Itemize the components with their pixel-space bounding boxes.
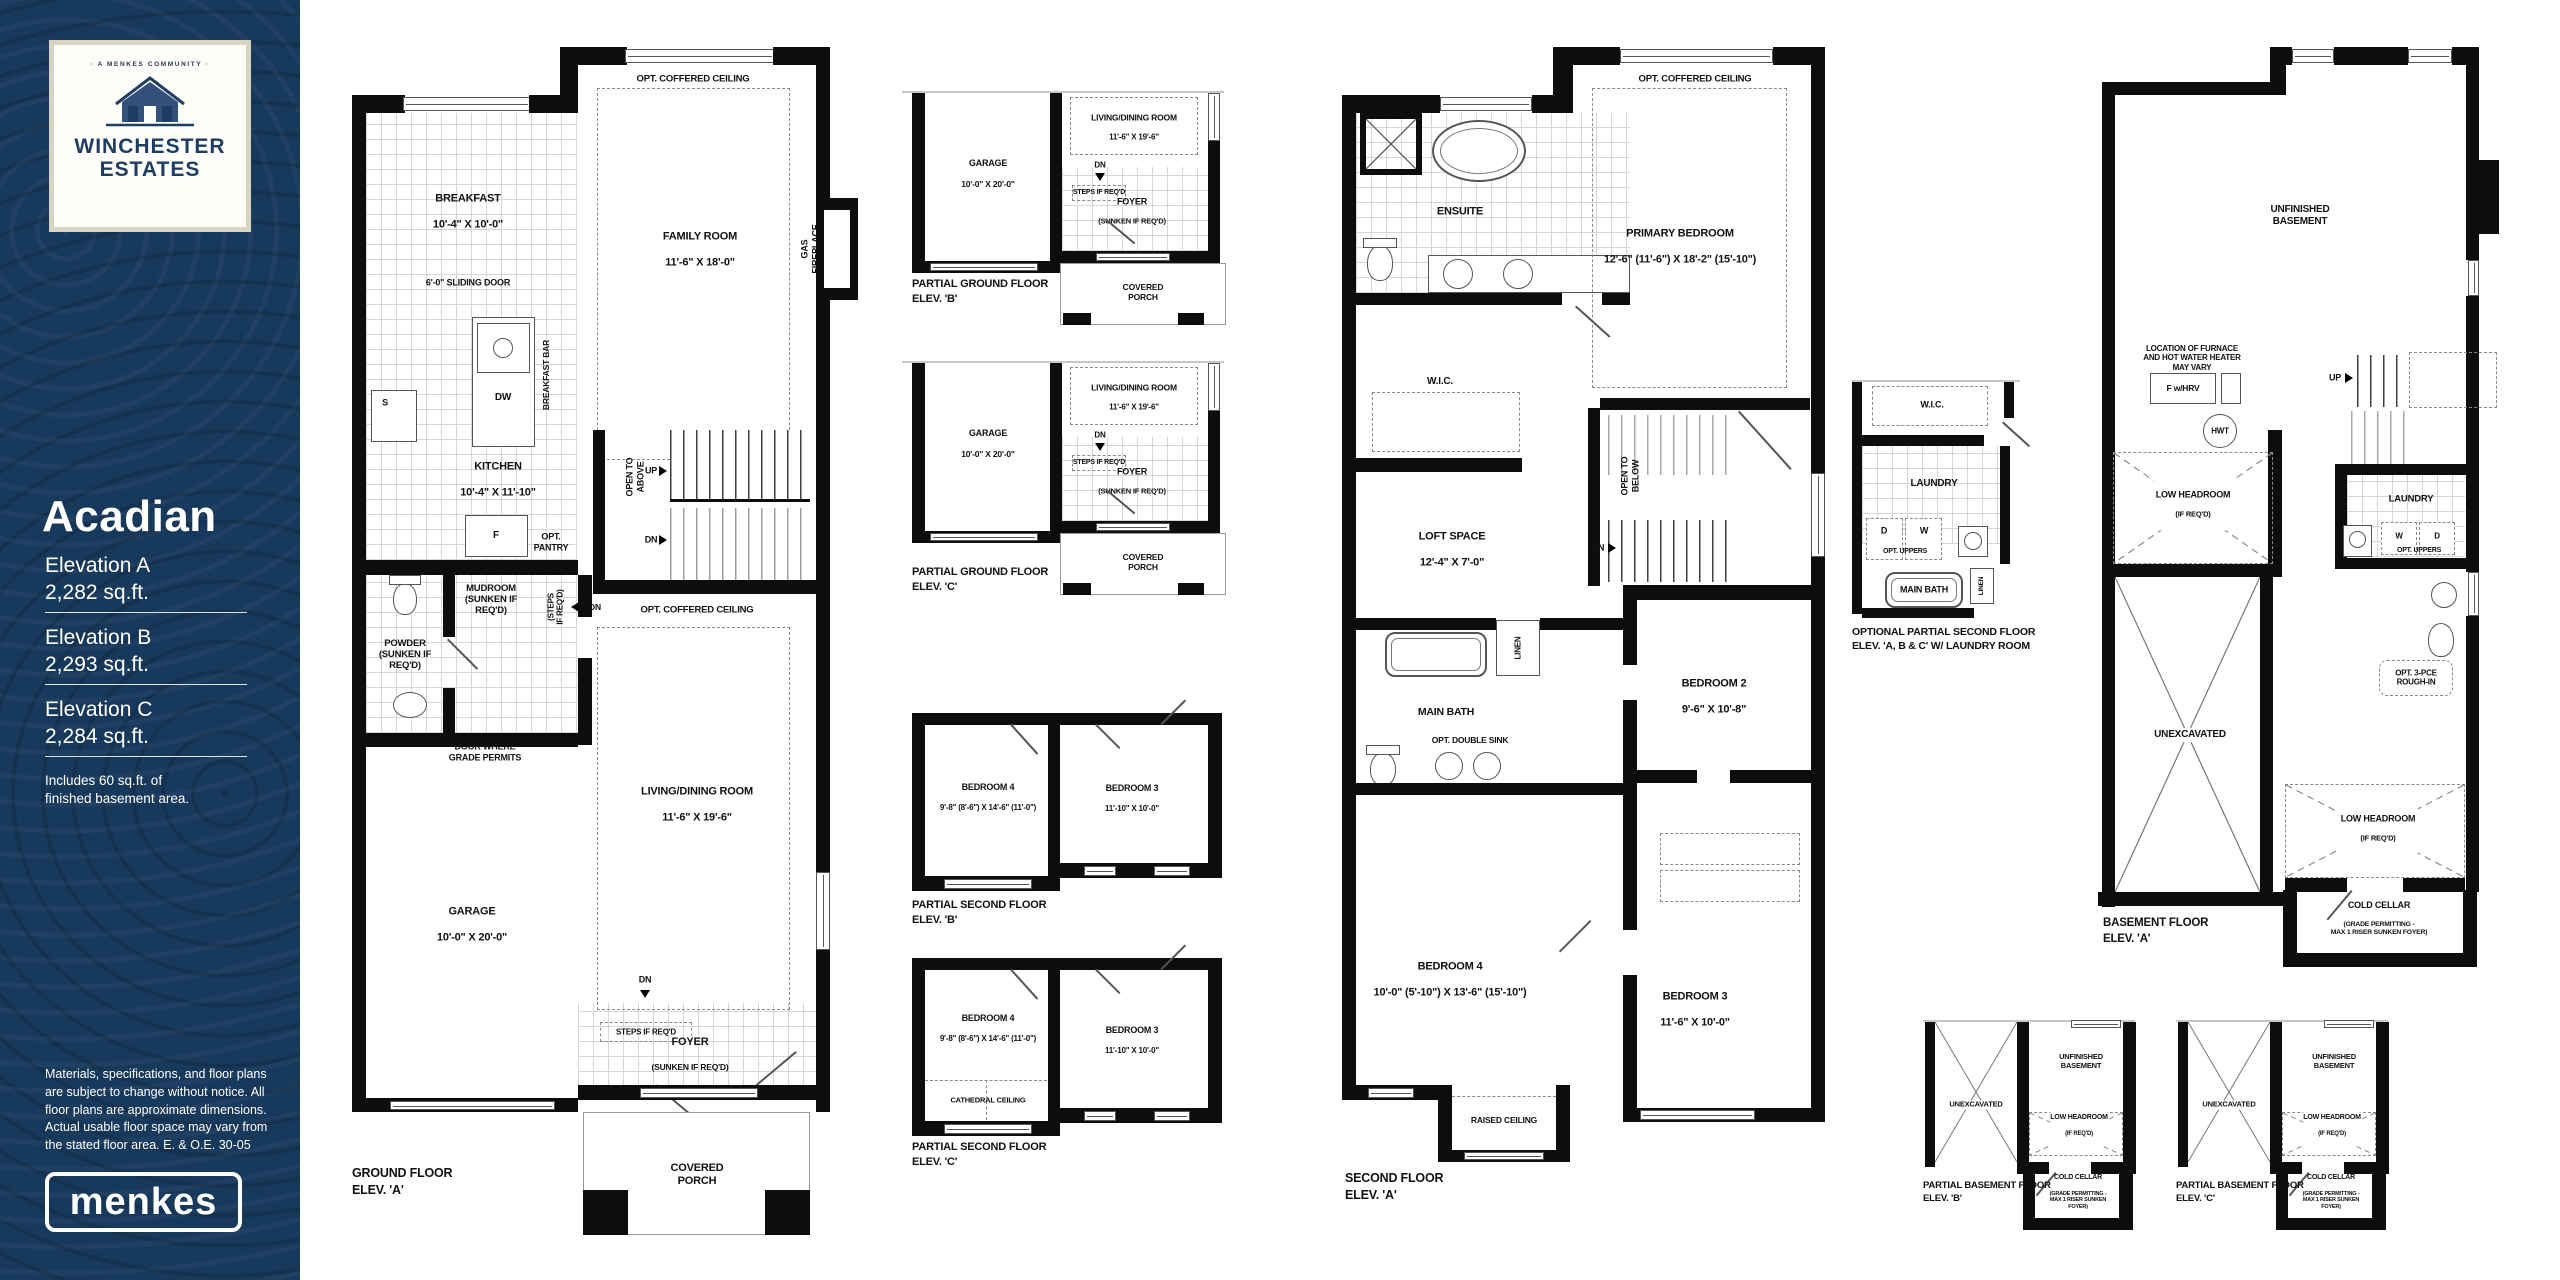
room-name: GARAGE — [961, 157, 1015, 168]
breakfast-bar-label: BREAKFAST BAR — [541, 340, 551, 410]
room-name: BEDROOM 3 — [1660, 991, 1730, 1004]
plan-title-line2: ELEV. 'C' — [912, 1155, 1046, 1170]
window — [944, 1124, 1032, 1134]
porch-pillar — [1063, 313, 1091, 325]
sliding-door-window — [403, 97, 531, 111]
wall — [443, 688, 455, 735]
window — [2324, 1020, 2374, 1028]
wall — [2276, 1218, 2386, 1230]
garage-label: GARAGE 10'-0" X 20'-0" — [961, 147, 1015, 199]
room-dim: 10'-4" X 10'-0" — [433, 218, 503, 231]
garage-label: GARAGE 10'-0" X 20'-0" — [437, 893, 507, 958]
wall — [1208, 713, 1222, 873]
shower — [1360, 113, 1422, 175]
cathedral-label: CATHEDRAL CEILING — [950, 1097, 1025, 1106]
wall — [1208, 958, 1222, 1118]
wall — [2102, 564, 2282, 577]
shower-glass — [1366, 119, 1416, 169]
plan-partial-basement-c: UNEXCAVATED UNFINISHED BASEMENT LOW HEAD… — [2176, 1020, 2394, 1235]
dn-label: DN — [639, 975, 652, 986]
room-dim: 11'-6" X 19'-6" — [1091, 402, 1177, 411]
porch-pillar — [1178, 313, 1204, 325]
label-line2: (GRADE PERMITTING - MAX 1 RISER SUNKEN F… — [2300, 1191, 2363, 1210]
cut-line — [902, 91, 1224, 93]
window — [1084, 1111, 1116, 1121]
window — [2292, 49, 2334, 63]
wall — [2102, 82, 2276, 95]
room-name: LOFT SPACE — [1419, 531, 1486, 544]
window — [1368, 1088, 1414, 1098]
toilet-icon — [393, 583, 417, 615]
plan-title: PARTIAL BASEMENT FLOOR ELEV. 'B' — [1923, 1180, 2051, 1206]
community-tagline: · A MENKES COMMUNITY · — [54, 61, 246, 68]
coffered-label: OPT. COFFERED CEILING — [637, 73, 750, 84]
unexcavated-label: UNEXCAVATED — [2201, 1101, 2256, 1110]
plan-title: OPTIONAL PARTIAL SECOND FLOOR ELEV. 'A, … — [1852, 625, 2035, 653]
sliding-door-label: 6'-0" SLIDING DOOR — [426, 278, 510, 289]
front-door — [1096, 253, 1170, 261]
wall — [1208, 411, 1220, 535]
wall — [1811, 557, 1825, 1122]
wall — [1540, 618, 1623, 630]
community-name-line1: WINCHESTER — [54, 135, 246, 158]
plan-optional-partial-second: W.I.C. LAUNDRY D W OPT. UPPERS MAIN BATH… — [1852, 378, 2072, 673]
plan-title-line1: PARTIAL BASEMENT FLOOR — [1923, 1180, 2051, 1193]
garage-door — [930, 263, 1038, 271]
linen-label: LINEN — [1978, 577, 1986, 596]
opt-uppers-label: OPT. UPPERS — [1883, 548, 1927, 556]
open-to-below-label: OPEN TO BELOW — [1619, 457, 1640, 496]
plan-title-line2: ELEV. 'A' — [2103, 932, 2208, 948]
window — [2408, 49, 2452, 63]
window — [2071, 1020, 2121, 1028]
room-name: BEDROOM 3 — [1105, 783, 1159, 794]
divider — [45, 684, 247, 685]
wall — [1050, 93, 1062, 273]
plan-title: PARTIAL GROUND FLOOR ELEV. 'B' — [912, 277, 1048, 307]
sink — [393, 692, 427, 718]
door-leaf — [1559, 920, 1591, 952]
breakfast-label: BREAKFAST 10'-4" X 10'-0" — [433, 180, 503, 245]
plan-title-line1: PARTIAL GROUND FLOOR — [912, 277, 1048, 292]
cold-cellar-label: COLD CELLAR (GRADE PERMITTING - MAX 1 RI… — [2047, 1166, 2110, 1218]
dn-arrow-icon — [659, 535, 667, 545]
unexcavated-x — [1935, 1022, 2017, 1162]
closet-outline — [1660, 833, 1800, 865]
fireplace-inset — [824, 210, 850, 288]
barn-illustration-icon — [92, 68, 208, 130]
wall — [2466, 65, 2479, 160]
unfinished-basement-label: UNFINISHED BASEMENT — [2312, 1053, 2356, 1071]
plan-title-line1: PARTIAL BASEMENT FLOOR — [2176, 1180, 2304, 1193]
wall — [1342, 458, 1522, 472]
dn-label: DN — [1094, 430, 1105, 439]
elevation-a-area: 2,282 sq.ft. — [45, 579, 150, 606]
plan-partial-ground-c: LIVING/DINING ROOM 11'-6" X 19'-6" DN ST… — [900, 355, 1232, 615]
front-door — [1096, 523, 1170, 531]
plan-title: GROUND FLOOR ELEV. 'A' — [352, 1165, 452, 1199]
front-door — [640, 1088, 758, 1098]
linen-label: LINEN — [1513, 636, 1522, 659]
unfinished-basement-label: UNFINISHED BASEMENT — [2270, 204, 2329, 228]
window — [1154, 1111, 1190, 1121]
room-name: BEDROOM 4 — [940, 782, 1036, 793]
unexcavated-label: UNEXCAVATED — [2151, 728, 2229, 742]
wall — [1356, 618, 1496, 630]
room-name: FOYER — [1098, 466, 1166, 477]
plan-partial-second-c: BEDROOM 4 9'-8" (8'-6") X 14'-6" (11'-0"… — [900, 950, 1232, 1180]
wall — [1730, 770, 1823, 783]
toilet-tank — [1363, 238, 1397, 248]
sink — [1503, 259, 1533, 289]
stove — [371, 390, 417, 442]
ensuite-label: ENSUITE — [1437, 206, 1483, 219]
toilet-icon — [1370, 752, 1396, 786]
furnace-label: F w/HRV — [2167, 383, 2200, 393]
window — [944, 879, 1032, 889]
porch-pillar — [1178, 583, 1204, 595]
porch-pillar — [1063, 583, 1091, 595]
plan-second-floor-a: ENSUITE OPT. COFFERED CEILING PRIMARY BE… — [1340, 40, 1840, 1205]
laundry-label: LAUNDRY — [2389, 493, 2434, 504]
wall — [2260, 577, 2273, 892]
stairs — [1608, 520, 1736, 582]
wall — [443, 575, 455, 637]
dn-label: DN — [589, 602, 601, 612]
room-name: FOYER — [1098, 196, 1166, 207]
up-arrow-icon — [2345, 373, 2353, 383]
wall — [2098, 892, 2286, 906]
plan-title-line2: ELEV. 'A' — [352, 1182, 452, 1199]
window — [1154, 866, 1190, 876]
dryer-label: D — [1881, 526, 1887, 537]
room-name: PRIMARY BEDROOM — [1604, 228, 1756, 241]
window — [1208, 93, 1220, 141]
plan-title-line2: ELEV. 'C' — [2176, 1193, 2304, 1206]
window — [1084, 866, 1116, 876]
dn-arrow-icon — [1095, 443, 1105, 451]
plan-partial-basement-b: UNEXCAVATED UNFINISHED BASEMENT LOW HEAD… — [1923, 1020, 2141, 1235]
toilet-icon — [2428, 623, 2454, 657]
low-headroom-label: LOW HEADROOM (IF REQ'D) — [2339, 801, 2418, 854]
rough-in-label: OPT. 3-PCE ROUGH-IN — [2395, 669, 2437, 688]
wall — [2123, 1022, 2136, 1168]
wall — [912, 958, 925, 1136]
sidebar: · A MENKES COMMUNITY · WINCHESTER ESTATE… — [0, 0, 300, 1280]
wall — [912, 713, 925, 891]
sink-bowl — [1964, 532, 1982, 550]
label-line1: COLD CELLAR — [2331, 899, 2428, 910]
plan-partial-ground-b: LIVING/DINING ROOM 11'-6" X 19'-6" DN ST… — [900, 85, 1232, 345]
garage-door — [390, 1101, 555, 1110]
wall — [1623, 585, 1823, 600]
room-name: BREAKFAST — [433, 193, 503, 206]
room-dim: 12'-4" X 7'-0" — [1419, 556, 1486, 569]
wall — [352, 95, 405, 113]
mudroom-label: MUDROOM (SUNKEN IF REQ'D) — [465, 583, 517, 617]
porch-pillar — [583, 1190, 628, 1235]
basement-note: Includes 60 sq.ft. of finished basement … — [45, 772, 189, 808]
window — [2468, 260, 2479, 296]
room-dim: 10'-4" X 11'-10" — [460, 486, 535, 499]
room-name: LIVING/DINING ROOM — [641, 786, 753, 799]
up-label: UP — [645, 466, 657, 477]
room-dim: 11'-6" X 19'-6" — [641, 811, 753, 824]
bedroom3-label: BEDROOM 3 11'-10" X 10'-0" — [1105, 772, 1159, 824]
laundry-label: LAUNDRY — [1910, 478, 1957, 490]
room-name: BEDROOM 2 — [1682, 678, 1747, 691]
wall — [912, 713, 1222, 725]
wall — [2270, 1022, 2282, 1174]
up-arrow-icon — [659, 466, 667, 476]
wall — [2017, 1022, 2029, 1174]
divider — [45, 756, 247, 757]
window — [1640, 1110, 1755, 1120]
room-name: BEDROOM 4 — [940, 1013, 1036, 1024]
wall — [593, 430, 605, 594]
bedroom4-label: BEDROOM 4 9'-8" (8'-6") X 14'-6" (11'-0"… — [940, 771, 1036, 823]
wall — [1588, 408, 1600, 586]
dryer-label: D — [2434, 531, 2440, 540]
window — [816, 872, 830, 950]
wall — [560, 47, 627, 65]
label-line1: LOW HEADROOM — [2050, 1114, 2107, 1122]
toilet-icon — [1367, 245, 1393, 281]
up-label: UP — [2329, 373, 2341, 384]
label-line2: (GRADE PERMITTING - MAX 1 RISER SUNKEN F… — [2047, 1191, 2110, 1210]
unexcavated-label: UNEXCAVATED — [1948, 1101, 2003, 1110]
stairs — [670, 430, 810, 500]
wall — [1623, 975, 1637, 1110]
low-headroom-label: LOW HEADROOM (IF REQ'D) — [2303, 1106, 2360, 1146]
plan-title-line2: ELEV. 'B' — [912, 292, 1048, 307]
cut-line — [902, 361, 1224, 363]
plan-title: PARTIAL BASEMENT FLOOR ELEV. 'C' — [2176, 1180, 2304, 1206]
sink — [1435, 752, 1463, 780]
bedroom3-label: BEDROOM 3 11'-6" X 10'-0" — [1660, 978, 1730, 1043]
plan-title-line1: BASEMENT FLOOR — [2103, 916, 2208, 932]
plan-title-line1: PARTIAL SECOND FLOOR — [912, 1140, 1046, 1155]
porch-label: COVERED PORCH — [1123, 282, 1164, 302]
dn-arrow-icon — [571, 602, 579, 612]
toilet-tank — [1366, 745, 1400, 755]
living-dining-label: LIVING/DINING ROOM 11'-6" X 19'-6" — [1091, 102, 1177, 152]
divider — [45, 612, 247, 613]
cold-cellar-label: COLD CELLAR (GRADE PERMITTING - MAX 1 RI… — [2300, 1166, 2363, 1218]
stairs — [2351, 411, 2407, 471]
plan-title-line2: ELEV. 'C' — [912, 580, 1048, 595]
ceiling-break-line — [1452, 1096, 1556, 1097]
room-dim: 11'-6" X 10'-0" — [1660, 1016, 1730, 1029]
wall — [352, 560, 578, 575]
foyer-label: FOYER (SUNKEN IF REQ'D) — [1098, 455, 1166, 506]
wall — [1342, 95, 1440, 113]
powder-label: POWDER (SUNKEN IF REQ'D) — [379, 638, 431, 672]
door-leaf — [2002, 422, 2030, 447]
dishwasher-label: DW — [495, 392, 511, 404]
room-name: BEDROOM 4 — [1374, 961, 1527, 974]
wall — [1208, 141, 1220, 265]
dn-label: DN — [1094, 160, 1105, 169]
plan-title-line1: SECOND FLOOR — [1345, 1170, 1443, 1187]
elevation-b-label: Elevation B — [45, 624, 151, 651]
stairs — [2357, 355, 2407, 407]
elevation-c: Elevation C 2,284 sq.ft. — [45, 696, 152, 751]
room-dim: 10'-0" X 20'-0" — [961, 449, 1015, 459]
sink — [1473, 752, 1501, 780]
porch-pillar — [765, 1190, 810, 1235]
room-name: LIVING/DINING ROOM — [1091, 382, 1177, 392]
door-leaf — [1010, 724, 1038, 755]
elevation-b: Elevation B 2,293 sq.ft. — [45, 624, 151, 679]
wall — [912, 958, 1222, 970]
double-sink-label: OPT. DOUBLE SINK — [1432, 735, 1509, 745]
bedroom2-label: BEDROOM 2 9'-6" X 10'-8" — [1682, 665, 1747, 730]
pantry-label: OPT. PANTRY — [534, 531, 569, 552]
coffered-label: OPT. COFFERED CEILING — [641, 604, 754, 615]
label-line1: COLD CELLAR — [2047, 1174, 2110, 1182]
room-name: GARAGE — [961, 427, 1015, 438]
loft-label: LOFT SPACE 12'-4" X 7'-0" — [1419, 518, 1486, 583]
room-dim: 11'-10" X 10'-0" — [1105, 804, 1159, 813]
wall — [2466, 296, 2479, 572]
foyer-label: FOYER (SUNKEN IF REQ'D) — [651, 1023, 728, 1085]
wall — [1852, 382, 1862, 614]
plan-title-line1: PARTIAL GROUND FLOOR — [912, 565, 1048, 580]
bedroom4-label: BEDROOM 4 10'-0" (5'-10") X 13'-6" (15'-… — [1374, 948, 1527, 1013]
wall — [1050, 363, 1062, 543]
label-line2: (IF REQ'D) — [2341, 834, 2416, 843]
wall — [578, 658, 592, 745]
dn-arrow-icon — [1608, 543, 1616, 553]
washer-label: W — [1920, 526, 1928, 537]
window — [625, 49, 775, 63]
wall — [1925, 1022, 1935, 1167]
wall — [593, 580, 830, 594]
builder-logo-text: menkes — [70, 1183, 218, 1221]
window — [1208, 363, 1220, 411]
wall — [2283, 953, 2477, 967]
sink — [1443, 259, 1473, 289]
elevation-a-label: Elevation A — [45, 552, 150, 579]
builder-logo: menkes — [45, 1172, 242, 1232]
wall — [912, 93, 925, 273]
window — [1811, 473, 1825, 557]
room-name: FAMILY ROOM — [663, 231, 737, 244]
community-logo-card: · A MENKES COMMUNITY · WINCHESTER ESTATE… — [49, 40, 251, 232]
wall — [352, 95, 366, 1110]
wall — [2335, 558, 2467, 569]
wall — [2178, 1022, 2188, 1167]
label-line2: (IF REQ'D) — [2303, 1131, 2360, 1138]
unexcavated-x — [2188, 1022, 2270, 1162]
wall-bump — [2466, 160, 2499, 234]
cut-line — [1852, 380, 2020, 382]
steps-label: (STEPS IF REQ'D) — [547, 589, 566, 624]
label-line2: (GRADE PERMITTING - MAX 1 RISER SUNKEN F… — [2331, 921, 2428, 937]
room-dim: 11'-10" X 10'-0" — [1105, 1046, 1159, 1055]
plan-title-line1: PARTIAL SECOND FLOOR — [912, 898, 1046, 913]
primary-bedroom-label: PRIMARY BEDROOM 12'-6" (11'-6") X 18'-2"… — [1604, 215, 1756, 280]
wall — [1048, 1108, 1222, 1123]
plan-title: PARTIAL SECOND FLOOR ELEV. 'C' — [912, 1140, 1046, 1170]
window — [2468, 572, 2479, 616]
wall — [912, 363, 925, 543]
garage-label: GARAGE 10'-0" X 20'-0" — [961, 417, 1015, 469]
wall — [2334, 47, 2408, 65]
wall — [1048, 958, 1060, 1126]
stairs — [670, 508, 810, 580]
low-headroom-label: LOW HEADROOM (IF REQ'D) — [2154, 477, 2233, 530]
label-line1: LOW HEADROOM — [2341, 813, 2416, 824]
dn-label: DN — [1592, 543, 1605, 554]
wall — [2335, 464, 2467, 475]
raised-ceiling-label: RAISED CEILING — [1471, 1115, 1537, 1125]
room-dim: 11'-6" X 18'-0" — [663, 256, 737, 269]
stair-rail — [1738, 411, 1791, 470]
floorplan-brochure: · A MENKES COMMUNITY · WINCHESTER ESTATE… — [0, 0, 2560, 1280]
label-line1: LOW HEADROOM — [2156, 489, 2231, 500]
closet-outline — [1660, 870, 1800, 902]
dn-label: DN — [645, 535, 658, 546]
open-to-above-label: OPEN TO ABOVE — [624, 458, 645, 497]
model-name: Acadian — [42, 492, 217, 542]
main-bath-label: MAIN BATH — [1418, 706, 1474, 718]
wall — [816, 47, 830, 198]
door-leaf — [1095, 969, 1120, 994]
label-line2: (IF REQ'D) — [2156, 510, 2231, 519]
room-dim: 9'-8" (8'-6") X 14'-6" (11'-0") — [940, 803, 1036, 812]
plan-title-line2: ELEV. 'B' — [1923, 1193, 2051, 1206]
plan-ground-floor-a: GAS FIREPLACE OPT. COFFERED CEILING 6'-0… — [345, 40, 865, 1255]
window — [1620, 49, 1773, 63]
label-line1: COLD CELLAR — [2300, 1174, 2363, 1182]
elevation-c-area: 2,284 sq.ft. — [45, 723, 152, 750]
washer-label: W — [2395, 531, 2402, 540]
sink-bowl — [2349, 531, 2366, 548]
room-name: BEDROOM 3 — [1105, 1025, 1159, 1036]
room-dim: 10'-0" (5'-10") X 13'-6" (15'-10") — [1374, 986, 1527, 999]
wall — [1623, 700, 1637, 930]
bedroom3-label: BEDROOM 3 11'-10" X 10'-0" — [1105, 1014, 1159, 1066]
room-name: FOYER — [651, 1036, 728, 1049]
grade-door-label: DOOR WHERE GRADE PERMITS — [449, 741, 521, 762]
room-dim: 9'-8" (8'-6") X 14'-6" (11'-0") — [940, 1034, 1036, 1043]
sink-bowl — [493, 338, 513, 358]
room-name: LIVING/DINING ROOM — [1091, 112, 1177, 122]
plan-title-line2: ELEV. 'A, B & C' W/ LAUNDRY ROOM — [1852, 639, 2035, 653]
door-leaf — [1095, 724, 1120, 749]
main-bath-label: MAIN BATH — [1900, 585, 1948, 596]
window — [1440, 97, 1532, 111]
unfinished-basement-label: UNFINISHED BASEMENT — [2059, 1053, 2103, 1071]
kitchen-label: KITCHEN 10'-4" X 11'-10" — [460, 448, 535, 513]
plan-title: BASEMENT FLOOR ELEV. 'A' — [2103, 916, 2208, 947]
porch-label: COVERED PORCH — [1123, 552, 1164, 572]
wall — [2466, 616, 2479, 892]
sink — [2431, 582, 2457, 608]
plan-title-line2: ELEV. 'B' — [912, 913, 1046, 928]
wall — [1048, 863, 1222, 878]
plan-title-line1: OPTIONAL PARTIAL SECOND FLOOR — [1852, 625, 2035, 639]
wall — [2466, 234, 2479, 260]
toilet-tank — [389, 575, 421, 585]
garage-door — [930, 533, 1038, 541]
plan-title: PARTIAL SECOND FLOOR ELEV. 'B' — [912, 898, 1046, 928]
plan-partial-second-b: BEDROOM 4 9'-8" (8'-6") X 14'-6" (11'-0"… — [900, 705, 1232, 935]
wall — [1811, 47, 1825, 473]
room-dim: 12'-6" (11'-6") X 18'-2" (15'-10") — [1604, 253, 1756, 266]
